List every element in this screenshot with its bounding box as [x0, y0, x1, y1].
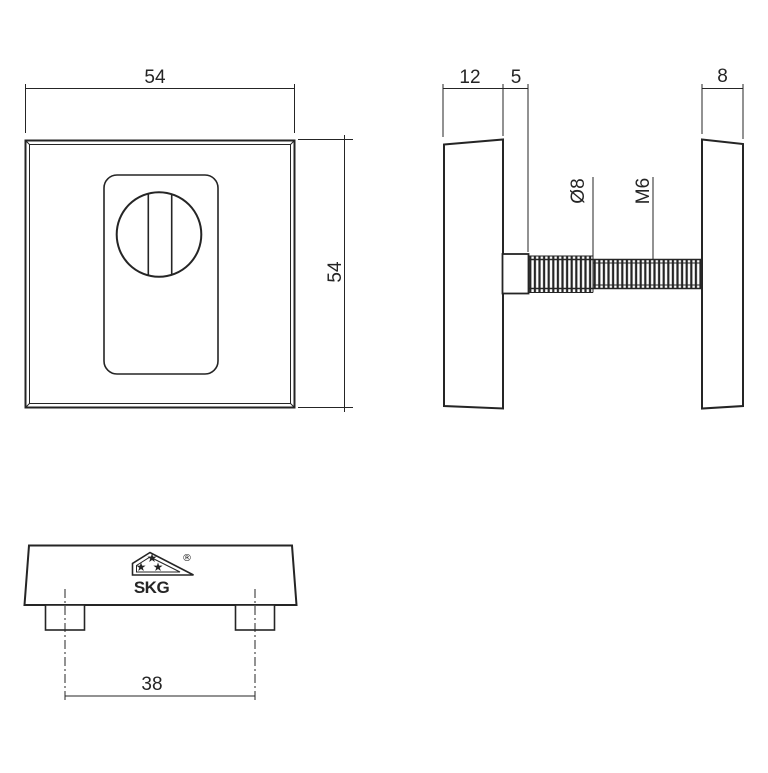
dimension-text-knob-thickness: 8	[717, 66, 728, 87]
dimension-front-width: 54	[26, 67, 295, 133]
threaded-rod	[529, 256, 703, 293]
star-icon: ★	[153, 560, 164, 574]
dimension-pin-spacing: 38	[65, 674, 255, 696]
rosette-outline-outer	[26, 141, 295, 408]
skg-logo-text: SKG	[134, 578, 170, 597]
drawing-canvas: 54 54	[0, 0, 768, 768]
cylinder-guard-disc	[117, 192, 202, 277]
inner-plate	[444, 140, 503, 409]
dimension-text-collar-length: 5	[511, 67, 522, 88]
cylinder-guard-plate	[104, 175, 218, 374]
outer-plate	[702, 140, 743, 409]
dimension-text-plate-thickness: 12	[459, 67, 480, 88]
technical-drawing: 54 54	[0, 0, 768, 768]
thread-size-label: M6	[633, 178, 654, 204]
bottom-view: ★ ★ ★ ® SKG 38	[25, 546, 297, 702]
side-view: 12 5 8 Ø8 M6	[443, 66, 743, 409]
thread-section-small	[593, 260, 702, 289]
thread-section-large	[529, 256, 594, 293]
registered-trademark-icon: ®	[182, 553, 192, 564]
dimension-text-pin-spacing: 38	[141, 674, 162, 695]
rosette-outline-inner	[30, 145, 291, 404]
dimension-front-height: 54	[298, 135, 353, 412]
front-view: 54 54	[26, 67, 354, 412]
rod-collar	[503, 254, 529, 294]
dimension-text-front-height: 54	[325, 261, 346, 283]
dimension-text-front-width: 54	[144, 67, 166, 88]
star-icon: ★	[136, 560, 147, 574]
rod-diameter-label: Ø8	[568, 178, 589, 203]
